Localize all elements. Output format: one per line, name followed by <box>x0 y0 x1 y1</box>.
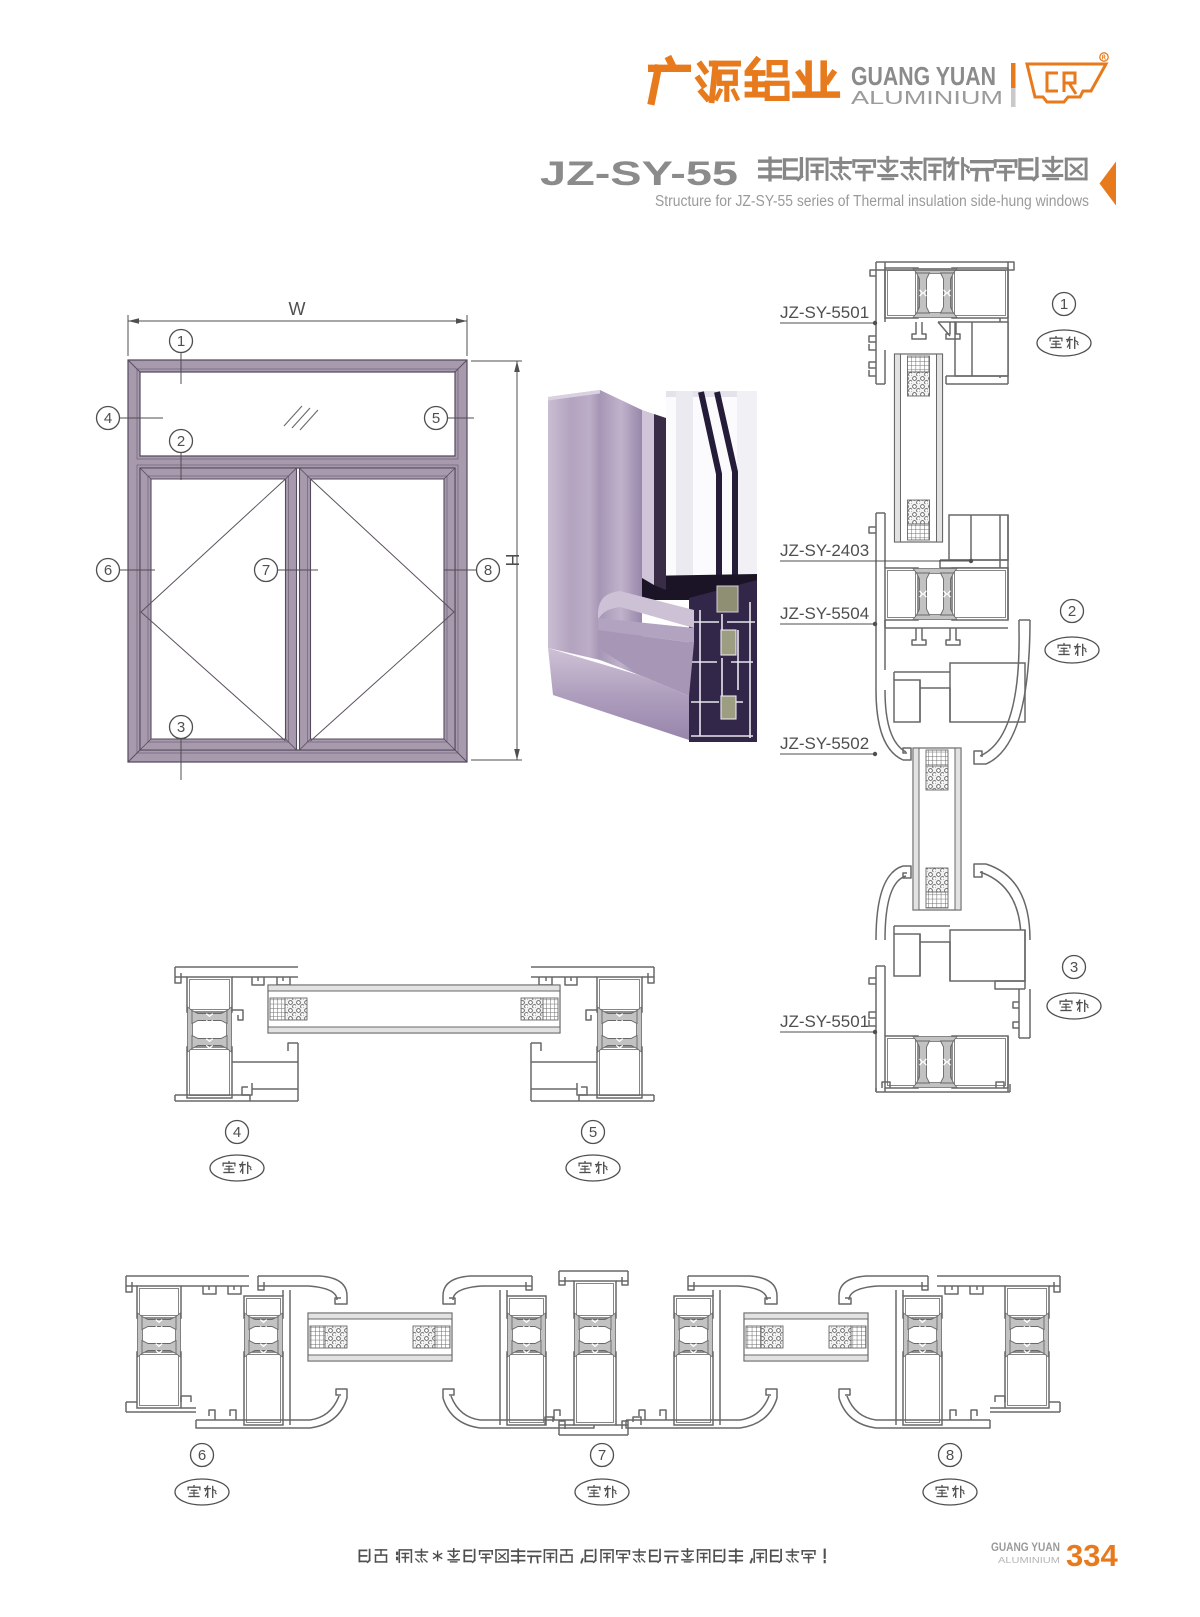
svg-text:8: 8 <box>484 562 492 579</box>
svg-text:JZ-SY-5501: JZ-SY-5501 <box>780 1012 869 1031</box>
svg-text:3: 3 <box>1070 959 1078 976</box>
svg-text:GUANG YUAN: GUANG YUAN <box>991 1542 1060 1554</box>
svg-text:JZ-SY-5502: JZ-SY-5502 <box>780 734 869 753</box>
svg-text:W: W <box>289 299 306 319</box>
svg-text:ALUMINIUM: ALUMINIUM <box>998 1555 1060 1565</box>
svg-text:3: 3 <box>177 719 185 736</box>
svg-text:4: 4 <box>233 1124 241 1141</box>
svg-text:4: 4 <box>104 410 112 427</box>
svg-text:8: 8 <box>946 1447 954 1464</box>
svg-text:Structure for JZ-SY-55 series: Structure for JZ-SY-55 series of Thermal… <box>655 193 1089 210</box>
svg-text:7: 7 <box>598 1447 606 1464</box>
svg-text:334: 334 <box>1066 1538 1118 1573</box>
svg-text:7: 7 <box>262 562 270 579</box>
svg-text:JZ-SY-5501: JZ-SY-5501 <box>780 303 869 322</box>
svg-text:5: 5 <box>589 1124 597 1141</box>
svg-text:5: 5 <box>432 410 440 427</box>
svg-text:6: 6 <box>198 1447 206 1464</box>
svg-text:JZ-SY-2403: JZ-SY-2403 <box>780 541 869 560</box>
svg-text:H: H <box>502 554 522 567</box>
svg-text:2: 2 <box>1068 603 1076 620</box>
svg-text:2: 2 <box>177 433 185 450</box>
svg-text:1: 1 <box>177 333 185 350</box>
svg-text:ALUMINIUM: ALUMINIUM <box>851 87 1003 108</box>
svg-text:JZ-SY-55: JZ-SY-55 <box>540 155 738 193</box>
svg-text:6: 6 <box>104 562 112 579</box>
svg-text:1: 1 <box>1060 296 1068 313</box>
svg-text:JZ-SY-5504: JZ-SY-5504 <box>780 604 869 623</box>
